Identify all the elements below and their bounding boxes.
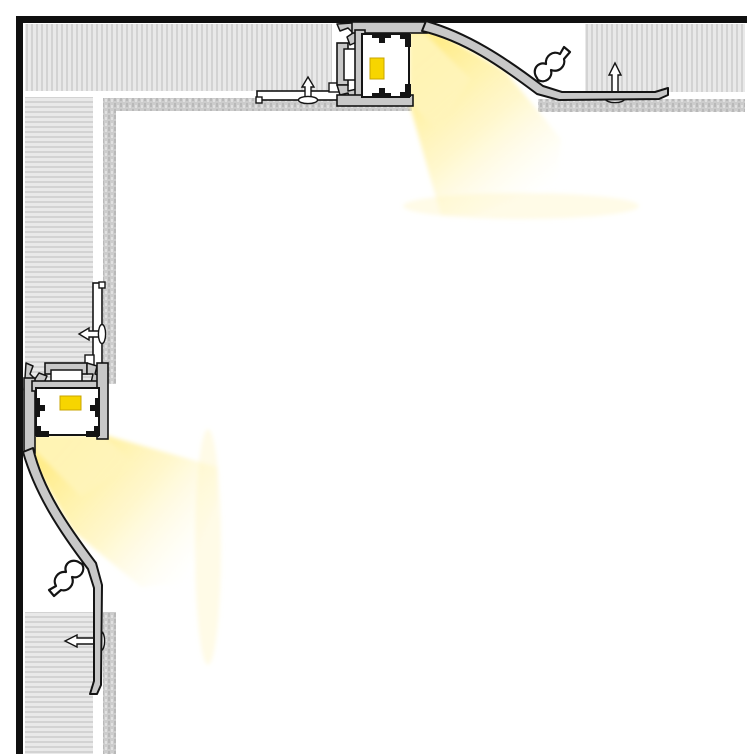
led-profile-cross-section-diagram [0,0,754,754]
ceiling-skimcoat-strip-outer [538,99,745,112]
ceiling-drywall-left-block [25,24,332,91]
diagram-canvas [0,0,754,754]
wall-drywall-upper-block [25,97,93,384]
wall-drywall-lower-block [25,612,93,754]
ceiling-drywall-right-block [585,24,745,92]
wall-skimcoat-strip-outer [103,612,116,754]
structural-border-left [16,16,23,754]
